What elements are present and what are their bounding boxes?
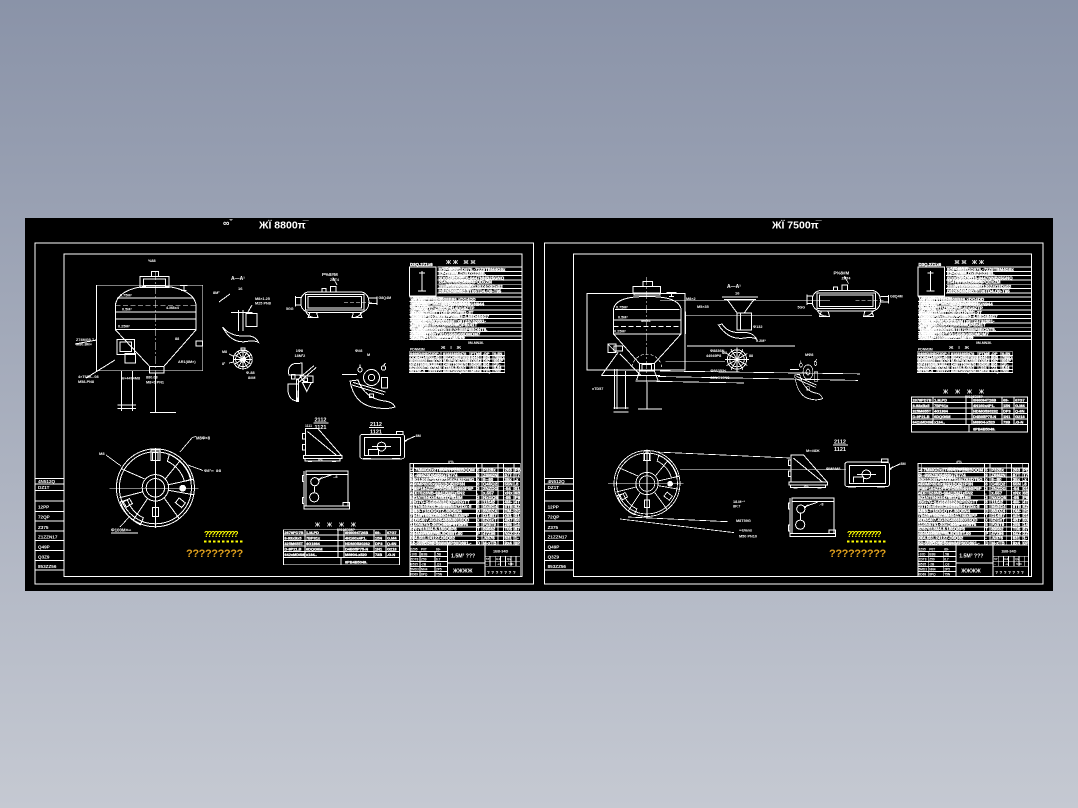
svg-text:M8: M8 xyxy=(99,451,105,456)
svg-text:M5×35: M5×35 xyxy=(697,305,709,309)
svg-text:Φ#8: Φ#8 xyxy=(355,349,362,353)
svg-text:880.08: 880.08 xyxy=(146,376,158,380)
svg-text:1111: 1111 xyxy=(305,424,312,428)
svg-text:%88: %88 xyxy=(148,259,156,263)
svg-text:M: M xyxy=(367,353,370,357)
svg-text:1Φ8: 1Φ8 xyxy=(296,349,303,353)
svg-text:M684: M684 xyxy=(641,319,651,323)
svg-text:88: 88 xyxy=(175,337,179,341)
svg-text:M8: M8 xyxy=(722,351,727,355)
svg-text:4×T689-..08: 4×T689-..08 xyxy=(78,375,99,379)
svg-text:M50 PN10: M50 PN10 xyxy=(739,535,757,539)
svg-text:Φ86353≤: Φ86353≤ xyxy=(710,369,726,373)
svg-text:MΦ8: MΦ8 xyxy=(805,353,813,357)
svg-text:M8Φ×8: M8Φ×8 xyxy=(196,436,211,441)
svg-text:M8: M8 xyxy=(222,350,227,354)
svg-text:6×4474M8: 6×4474M8 xyxy=(122,377,140,381)
svg-text:44949P8: 44949P8 xyxy=(706,354,721,358)
svg-text:M8×1.25: M8×1.25 xyxy=(255,297,270,301)
svg-text:AR1(8M×): AR1(8M×) xyxy=(178,360,196,364)
svg-text:86NG10N8: 86NG10N8 xyxy=(710,376,729,380)
svg-text:M∞#8Ж: M∞#8Ж xyxy=(806,449,820,453)
svg-text:M8T59G: M8T59G xyxy=(736,519,751,523)
svg-text:16: 16 xyxy=(735,291,740,296)
svg-text:Z74MG5.7: Z74MG5.7 xyxy=(76,338,94,342)
svg-text:ЖЇ 7500π̅: ЖЇ 7500π̅ xyxy=(771,219,822,232)
svg-text:8P.7: 8P.7 xyxy=(733,505,740,509)
svg-text:M25 PN8: M25 PN8 xyxy=(255,302,271,306)
svg-text:0.5M³: 0.5M³ xyxy=(122,308,132,312)
svg-text:0.75M³: 0.75M³ xyxy=(616,306,629,310)
svg-text:4-M8x4: 4-M8x4 xyxy=(166,306,180,310)
svg-text:0.25M³: 0.25M³ xyxy=(118,325,131,329)
svg-text:16: 16 xyxy=(238,286,243,291)
svg-text:Φ-88: Φ-88 xyxy=(246,371,255,375)
svg-text:8⁄8: 8⁄8 xyxy=(216,468,222,473)
svg-text:ЖЇ 8800π̅: ЖЇ 8800π̅ xyxy=(258,219,309,232)
svg-text:8#M: 8#M xyxy=(248,376,255,380)
svg-text:M8×0 PN1: M8×0 PN1 xyxy=(146,381,164,385)
svg-text:A—A¹: A—A¹ xyxy=(231,276,245,282)
svg-text:18M²2: 18M²2 xyxy=(295,354,306,358)
svg-text:Φ8²∞: Φ8²∞ xyxy=(204,468,214,473)
svg-text:18.M−³: 18.M−³ xyxy=(733,500,746,504)
svg-text:M80.8M×: M80.8M× xyxy=(76,343,93,347)
svg-text:8M²: 8M² xyxy=(213,291,220,295)
svg-text:0.75M³: 0.75M³ xyxy=(120,294,133,298)
svg-text:∞ˇ: ∞ˇ xyxy=(223,218,233,228)
svg-text:ΦM8⁄M8: ΦM8⁄M8 xyxy=(826,467,840,471)
svg-text:M58-PN8: M58-PN8 xyxy=(78,380,94,384)
svg-text:Φ100M×∞: Φ100M×∞ xyxy=(111,528,131,533)
svg-text:Φ132: Φ132 xyxy=(753,325,762,329)
svg-text:∞Ulan≤: ∞Ulan≤ xyxy=(739,529,752,533)
svg-text:0.25M³: 0.25M³ xyxy=(614,330,627,334)
svg-text:0.5M³: 0.5M³ xyxy=(618,316,628,320)
svg-text:A—A¹: A—A¹ xyxy=(727,284,741,290)
svg-text:88: 88 xyxy=(749,354,753,358)
svg-text:0.2M³: 0.2M³ xyxy=(756,339,766,343)
svg-text:xTD57: xTD57 xyxy=(592,387,603,391)
